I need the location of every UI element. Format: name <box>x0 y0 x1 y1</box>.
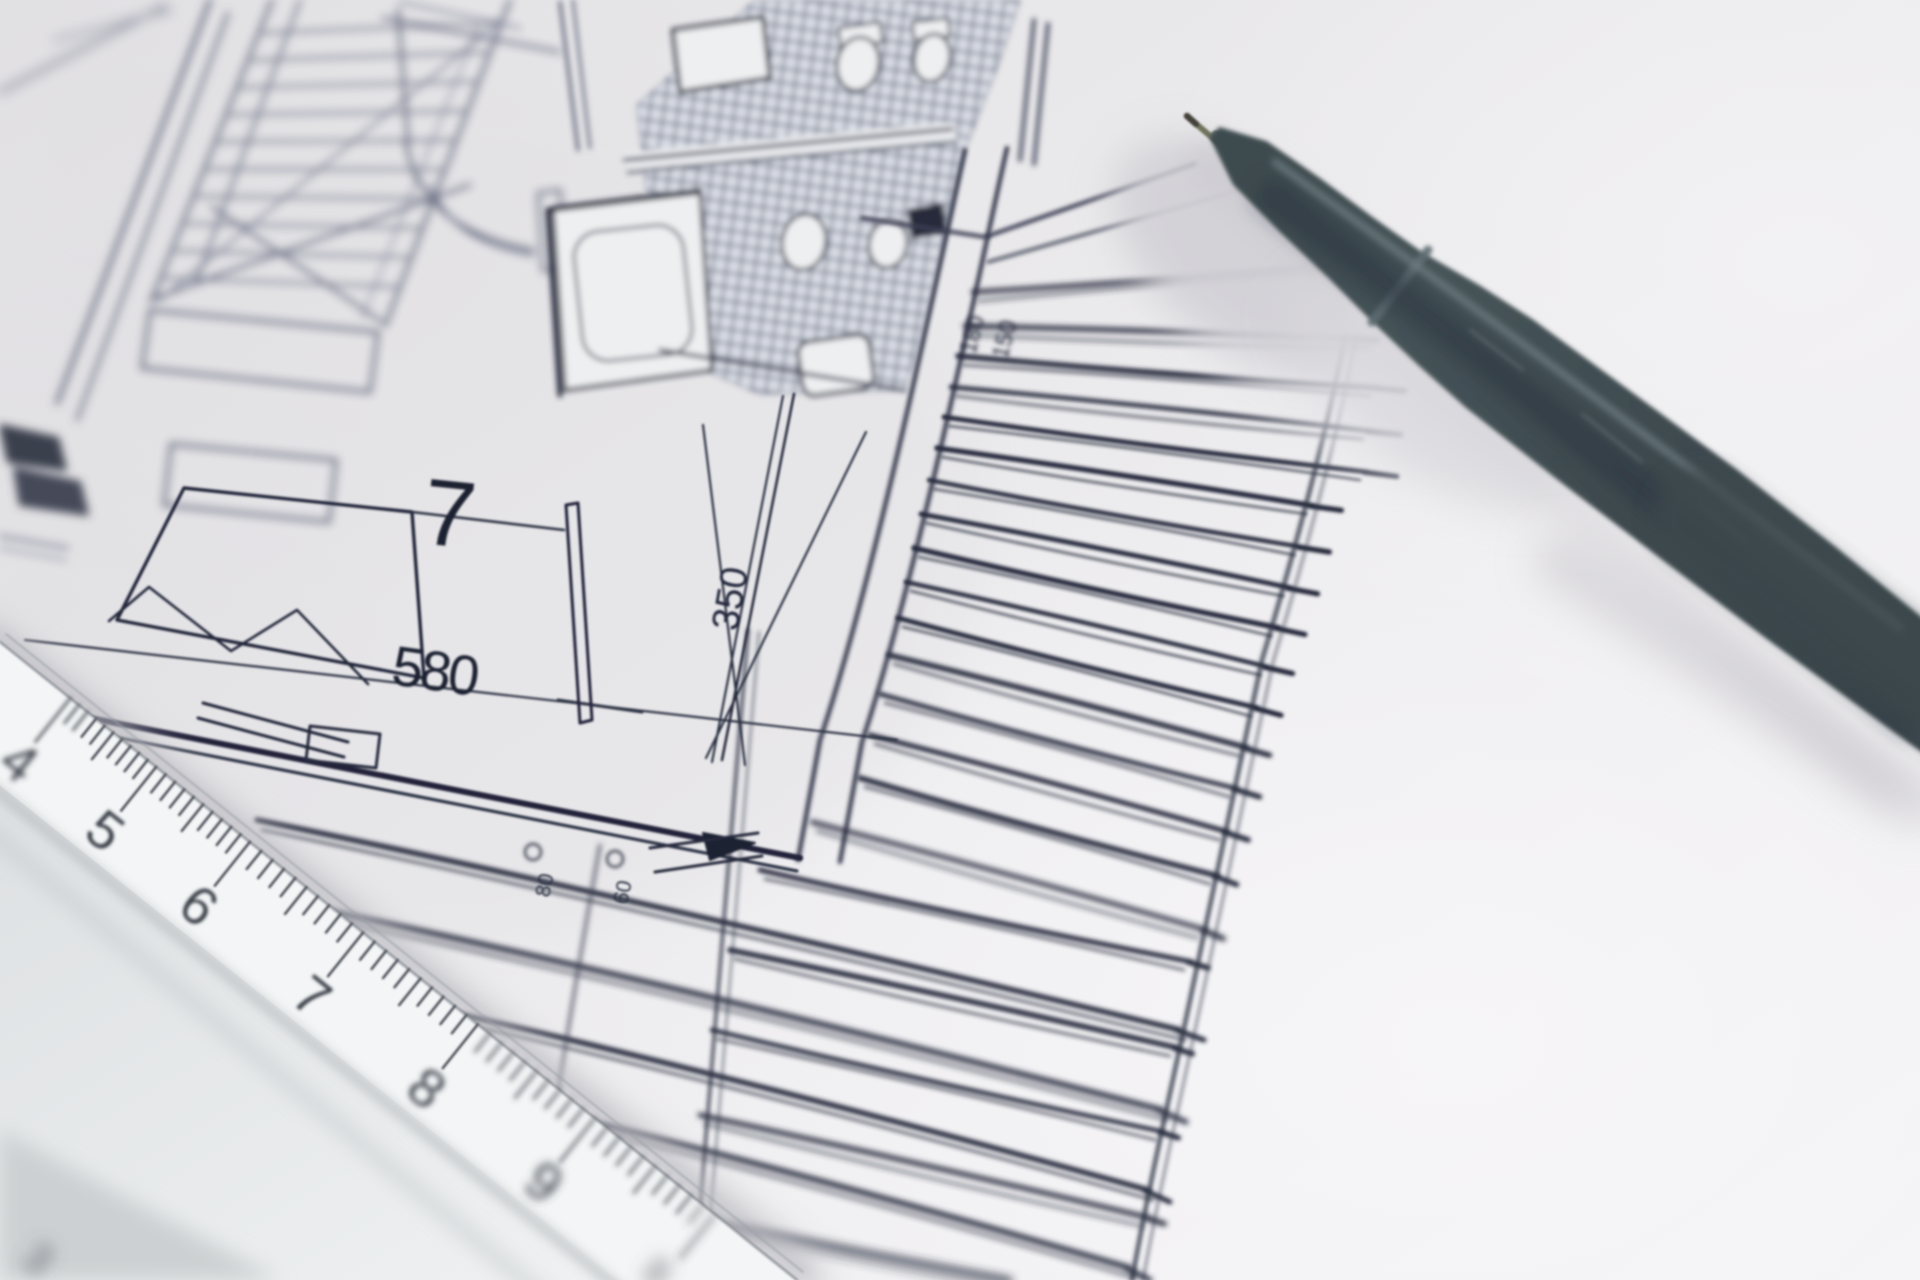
svg-text:7: 7 <box>418 458 481 568</box>
svg-text:60: 60 <box>609 878 636 906</box>
svg-text:580: 580 <box>388 633 481 707</box>
svg-text:80: 80 <box>531 871 558 899</box>
